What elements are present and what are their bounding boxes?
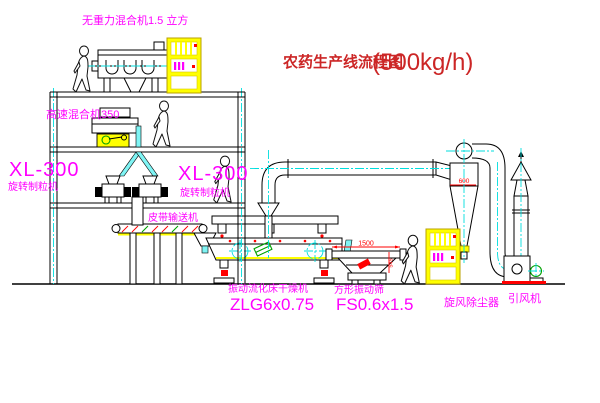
label-granulator-right-model: XL-300: [178, 163, 249, 185]
person-second-floor: [153, 101, 170, 147]
diagram-title-capacity: (500kg/h): [372, 49, 473, 76]
dim-sieve-length: 1500: [358, 241, 374, 248]
person-ground: [401, 235, 419, 284]
induced-draft-fan: [502, 256, 546, 284]
label-dryer-name: 振动流化床干燥机: [228, 282, 308, 295]
diagram-canvas: 无重力混合机1.5 立方 高速混合机350 XL-300 旋转制粒机 XL-30…: [0, 0, 600, 403]
fluid-bed-dryer: [206, 216, 342, 283]
label-belt-conveyor: 皮带输送机: [148, 211, 198, 224]
dim-sieve-height: 545: [389, 258, 395, 267]
label-dryer-model: ZLG6x0.75: [230, 295, 314, 314]
dim-cyclone-width: 600: [459, 178, 470, 185]
label-gravity-mixer: 无重力混合机1.5 立方: [82, 13, 188, 27]
granulator-discharge-pipe: [132, 197, 143, 225]
person-roof: [73, 46, 90, 92]
label-granulator-left-model: XL-300: [9, 159, 80, 181]
label-high-speed-mixer: 高速混合机350: [46, 107, 119, 121]
label-fan: 引风机: [508, 291, 541, 305]
label-cyclone: 旋风除尘器: [444, 295, 499, 309]
label-sieve-model: FS0.6x1.5: [336, 295, 414, 314]
gravity-free-mixer: [86, 42, 180, 92]
label-granulator-right-name: 旋转制粒机: [180, 186, 230, 199]
cad-flow-diagram: 无重力混合机1.5 立方 高速混合机350 XL-300 旋转制粒机 XL-30…: [0, 0, 600, 403]
belt-conveyor: [112, 224, 216, 284]
control-cabinet-upper: [167, 38, 201, 93]
control-cabinet-lower: [426, 229, 460, 284]
label-granulator-left-name: 旋转制粒机: [8, 180, 58, 193]
